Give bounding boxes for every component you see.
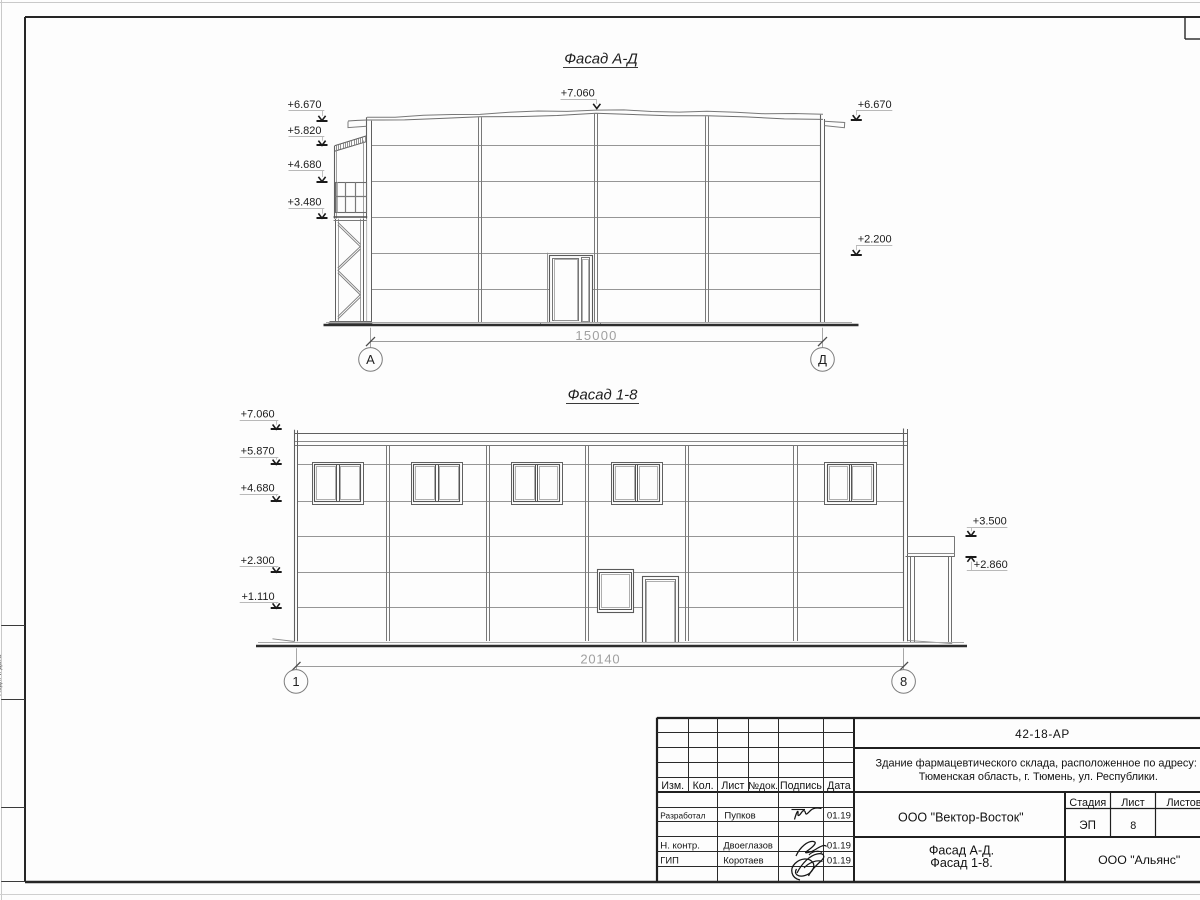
svg-text:Подпись: Подпись xyxy=(780,780,822,792)
svg-text:42-18-АР: 42-18-АР xyxy=(1015,727,1070,741)
svg-text:15000: 15000 xyxy=(575,328,617,343)
svg-text:ГИП: ГИП xyxy=(660,855,679,866)
svg-text:+6.670: +6.670 xyxy=(288,99,322,111)
svg-text:Лист: Лист xyxy=(1121,797,1145,809)
svg-text:8: 8 xyxy=(900,674,907,689)
svg-text:ООО "Альянс": ООО "Альянс" xyxy=(1098,853,1180,867)
svg-text:+2.200: +2.200 xyxy=(858,233,892,245)
svg-text:Коротаев: Коротаев xyxy=(723,856,763,866)
svg-text:ЭП: ЭП xyxy=(1079,819,1096,832)
svg-text:+3.480: +3.480 xyxy=(288,197,322,209)
svg-text:+1.110: +1.110 xyxy=(241,591,274,603)
svg-text:Пупков: Пупков xyxy=(724,811,755,822)
svg-text:1: 1 xyxy=(292,674,299,689)
svg-text:01.19: 01.19 xyxy=(827,855,851,866)
svg-text:А: А xyxy=(366,352,375,367)
svg-text:+4.680: +4.680 xyxy=(288,159,322,171)
svg-text:+7.060: +7.060 xyxy=(561,88,595,100)
svg-text:20140: 20140 xyxy=(580,652,620,667)
svg-text:Двоеглазов: Двоеглазов xyxy=(723,841,772,851)
svg-text:Подп. и дата: Подп. и дата xyxy=(0,655,3,696)
svg-text:+7.060: +7.060 xyxy=(241,409,275,421)
svg-text:Дата: Дата xyxy=(827,780,851,792)
svg-text:Д: Д xyxy=(818,352,827,367)
svg-text:Лист: Лист xyxy=(721,780,744,792)
svg-text:Здание фармацевтического склад: Здание фармацевтического склада, располо… xyxy=(876,757,1197,769)
svg-text:+5.820: +5.820 xyxy=(288,125,322,137)
svg-text:01.19: 01.19 xyxy=(827,810,851,821)
svg-text:Н. контр.: Н. контр. xyxy=(660,841,700,852)
svg-text:+2.860: +2.860 xyxy=(974,559,1008,571)
svg-text:+2.300: +2.300 xyxy=(241,555,275,567)
svg-text:Фасад 1-8.: Фасад 1-8. xyxy=(930,856,992,870)
svg-text:+5.870: +5.870 xyxy=(241,446,275,458)
svg-text:Стадия: Стадия xyxy=(1069,797,1106,809)
svg-text:Фасад А-Д: Фасад А-Д xyxy=(564,52,638,68)
svg-text:Фасад 1-8: Фасад 1-8 xyxy=(568,388,638,404)
svg-text:01.19: 01.19 xyxy=(827,840,851,851)
svg-text:Тюменская область, г. Тюмень,: Тюменская область, г. Тюмень, ул. Респуб… xyxy=(919,771,1158,783)
svg-text:№док.: №док. xyxy=(748,781,778,792)
svg-text:Изм.: Изм. xyxy=(661,780,684,792)
svg-text:+4.680: +4.680 xyxy=(241,482,275,494)
svg-text:+3.500: +3.500 xyxy=(973,516,1007,528)
svg-text:ООО "Вектор-Восток": ООО "Вектор-Восток" xyxy=(898,810,1024,824)
svg-text:8: 8 xyxy=(1130,820,1136,832)
svg-text:Разработал: Разработал xyxy=(660,811,705,821)
svg-text:Листов: Листов xyxy=(1166,797,1200,809)
svg-text:+6.670: +6.670 xyxy=(858,99,892,111)
svg-text:Кол.: Кол. xyxy=(693,780,714,792)
